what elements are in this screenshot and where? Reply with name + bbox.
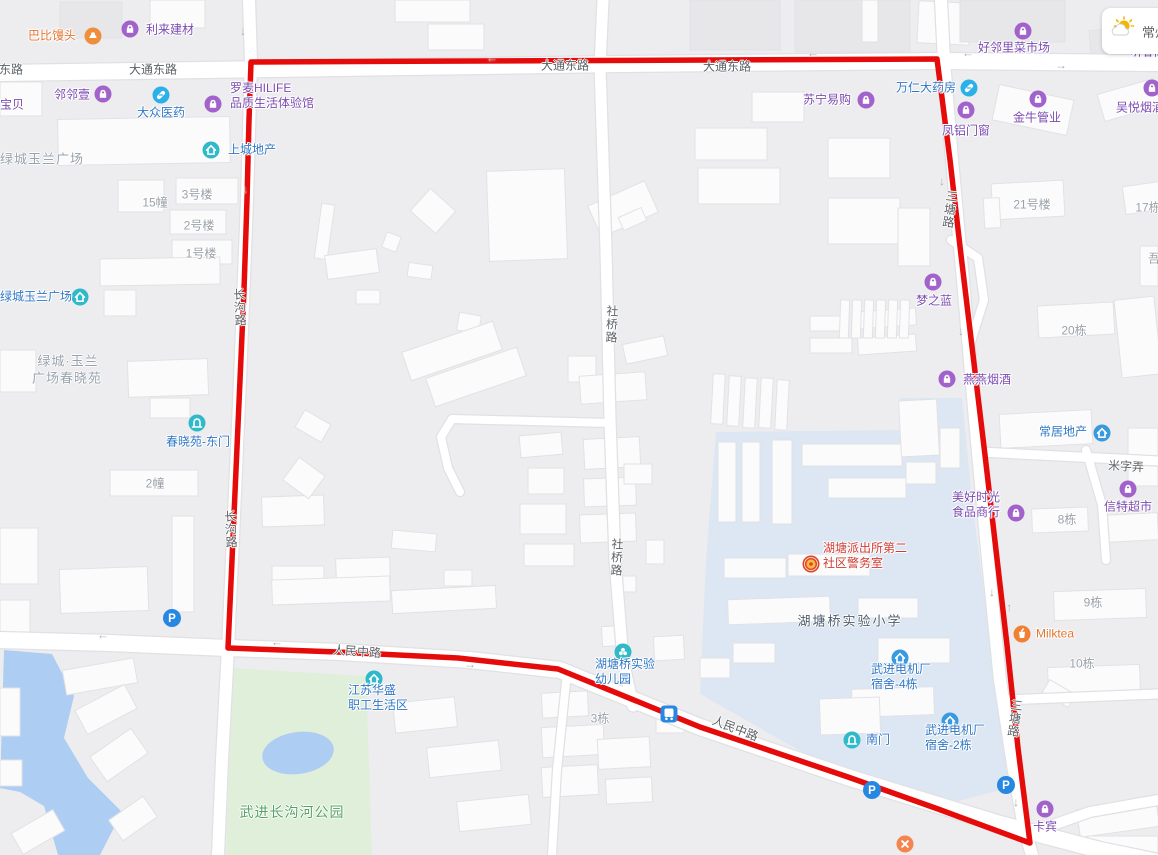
road-direction-arrow: → xyxy=(464,657,476,671)
milktea-cup-icon[interactable] xyxy=(1013,625,1031,643)
parking-icon[interactable]: P xyxy=(863,781,881,799)
building-label: 10栋 xyxy=(1069,655,1094,672)
road-label: 大通东路 xyxy=(129,64,177,77)
parking-icon[interactable]: P xyxy=(163,609,181,627)
building-label: 3栋 xyxy=(591,710,610,727)
svg-text:P: P xyxy=(868,785,876,797)
road-label: 米字弄 xyxy=(1108,460,1145,475)
svg-text:P: P xyxy=(168,613,176,625)
road-direction-arrow: → xyxy=(807,50,819,64)
area-label: 广场春晓苑 xyxy=(32,368,102,387)
poi-label[interactable]: 上城地产 xyxy=(228,143,276,158)
poi-label[interactable]: 南门 xyxy=(866,733,890,748)
pharmacy-capsule-icon[interactable] xyxy=(152,86,170,104)
poi-label[interactable]: 万仁大药房 xyxy=(896,81,956,96)
police-badge-icon[interactable] xyxy=(802,555,820,573)
poi-label[interactable]: 湖塘派出所第二 社区警务室 xyxy=(823,541,907,571)
sun-cloud-icon xyxy=(1110,16,1136,47)
road-direction-arrow: → xyxy=(240,184,254,196)
poi-label[interactable]: 邻邻壹 xyxy=(54,88,90,103)
road-label: 人民中路 xyxy=(333,644,382,660)
building-label: 2号楼 xyxy=(184,217,215,234)
gate-door-icon[interactable] xyxy=(843,731,861,749)
building-label: 21号楼 xyxy=(1013,196,1050,213)
building-label: 3号楼 xyxy=(182,186,213,203)
road-label: 大通东路 xyxy=(703,61,751,74)
poi-label[interactable]: 利来建材 xyxy=(146,23,194,38)
weather-widget[interactable]: 常州 xyxy=(1102,8,1158,54)
map-canvas[interactable]: →→→→→→→→→→→→→→东路大通东路大通东路大通东路人民中路人民中路米字弄社… xyxy=(0,0,1158,855)
building-label: 1号楼 xyxy=(186,245,217,262)
poi-label[interactable]: 吴悦烟酒 xyxy=(1116,101,1158,116)
weather-city-label: 常州 xyxy=(1142,22,1158,41)
shop-bag-icon[interactable] xyxy=(857,91,875,109)
poi-label[interactable]: 卡宾 xyxy=(1033,820,1057,835)
parking-icon[interactable]: P xyxy=(997,776,1015,794)
building-label: 8栋 xyxy=(1058,511,1077,528)
poi-label[interactable]: 湖塘桥实验 幼儿园 xyxy=(595,657,655,687)
road-direction-arrow: → xyxy=(987,587,1001,599)
poi-label[interactable]: 巴比馒头 xyxy=(28,29,76,44)
poi-label[interactable]: 江苏华盛 职工生活区 xyxy=(348,683,408,713)
area-label: 绿城玉兰广场 xyxy=(0,149,84,168)
poi-label[interactable]: 罗麦HILIFE 品质生活体验馆 xyxy=(230,81,314,111)
bus-stop-icon[interactable] xyxy=(660,705,678,723)
poi-label[interactable]: Milktea xyxy=(1036,627,1074,642)
building-label: 20栋 xyxy=(1061,322,1086,339)
shop-bag-icon[interactable] xyxy=(1119,480,1137,498)
road-direction-arrow: → xyxy=(956,326,970,338)
building-label: 2幢 xyxy=(146,475,165,492)
road-direction-arrow: → xyxy=(1011,797,1025,809)
shop-bag-icon[interactable] xyxy=(1036,800,1054,818)
road-label: 大通东路 xyxy=(541,60,589,73)
poi-label[interactable]: 武进电机厂 宿舍-2栋 xyxy=(925,723,985,753)
building-label: 17栋 xyxy=(1135,199,1158,216)
road-label: 社 桥 路 xyxy=(605,305,618,344)
poi-label[interactable]: 春晓苑-东门 xyxy=(166,435,230,450)
road-label: 长 沟 路 xyxy=(224,510,238,550)
shop-bag-icon[interactable] xyxy=(924,273,942,291)
road-direction-arrow: → xyxy=(97,632,109,646)
area-label: 湖塘桥实验小学 xyxy=(797,611,902,630)
poi-label[interactable]: 大众医药 xyxy=(137,106,185,121)
road-label: 长 沟 路 xyxy=(233,288,247,328)
poi-label[interactable]: 凤铝门窗 xyxy=(942,124,990,139)
road-direction-arrow: → xyxy=(271,639,283,653)
building-label: 15幢 xyxy=(142,194,167,211)
bun-food-icon[interactable] xyxy=(84,27,102,45)
svg-text:P: P xyxy=(1002,780,1010,792)
building-house-icon[interactable] xyxy=(202,141,220,159)
shop-bag-icon[interactable] xyxy=(121,20,139,38)
poi-label[interactable]: 苏宁易购 xyxy=(803,93,851,108)
poi-label[interactable]: 好邻里菜市场 xyxy=(978,41,1050,56)
shop-bag-icon[interactable] xyxy=(938,370,956,388)
poi-label[interactable]: 信特超市 xyxy=(1104,500,1152,515)
shop-bag-icon[interactable] xyxy=(957,101,975,119)
shop-bag-icon[interactable] xyxy=(1029,90,1047,108)
building-label: 9栋 xyxy=(1084,594,1103,611)
road-direction-arrow: → xyxy=(238,26,252,38)
road-direction-arrow: → xyxy=(1055,58,1067,72)
poi-label[interactable]: 常居地产 xyxy=(1039,425,1087,440)
road-direction-arrow: → xyxy=(1000,602,1014,614)
poi-label[interactable]: 梦之蓝 xyxy=(916,294,952,309)
pharmacy-capsule-icon[interactable] xyxy=(960,79,978,97)
poi-label[interactable]: 美好时光 食品商行 xyxy=(952,490,1000,520)
shop-bag-icon[interactable] xyxy=(204,95,222,113)
road-label: 社 桥 路 xyxy=(610,538,623,577)
building-house-icon[interactable] xyxy=(71,288,89,306)
road-direction-arrow: → xyxy=(486,55,498,69)
building-label: 吾 xyxy=(1148,250,1158,267)
road-label: 三 塘 路 xyxy=(1007,699,1024,739)
poi-label[interactable]: 宝贝 xyxy=(0,98,24,113)
shop-bag-icon[interactable] xyxy=(1014,22,1032,40)
road-direction-arrow: → xyxy=(962,50,974,64)
shop-bag-icon[interactable] xyxy=(1007,504,1025,522)
poi-label[interactable]: 金牛管业 xyxy=(1013,111,1061,126)
shop-bag-icon[interactable] xyxy=(94,85,112,103)
area-label: 武进长沟河公园 xyxy=(240,802,345,822)
gate-door-icon[interactable] xyxy=(188,414,206,432)
road-label: 人民中路 xyxy=(710,714,759,743)
road-label: 东路 xyxy=(0,64,23,77)
poi-label[interactable]: 燕燕烟酒 xyxy=(963,373,1011,388)
road-label: 三 塘 路 xyxy=(942,190,959,230)
poi-label[interactable]: 武进电机厂 宿舍-4栋 xyxy=(871,662,931,692)
building-house-icon[interactable] xyxy=(1093,424,1111,442)
map-labels-layer: →→→→→→→→→→→→→→东路大通东路大通东路大通东路人民中路人民中路米字弄社… xyxy=(0,0,1158,855)
restaurant-fork-icon[interactable] xyxy=(896,835,914,853)
shop-bag-icon[interactable] xyxy=(1143,79,1158,97)
poi-label[interactable]: 绿城玉兰广场 xyxy=(0,290,72,305)
road-direction-arrow: → xyxy=(937,176,951,188)
